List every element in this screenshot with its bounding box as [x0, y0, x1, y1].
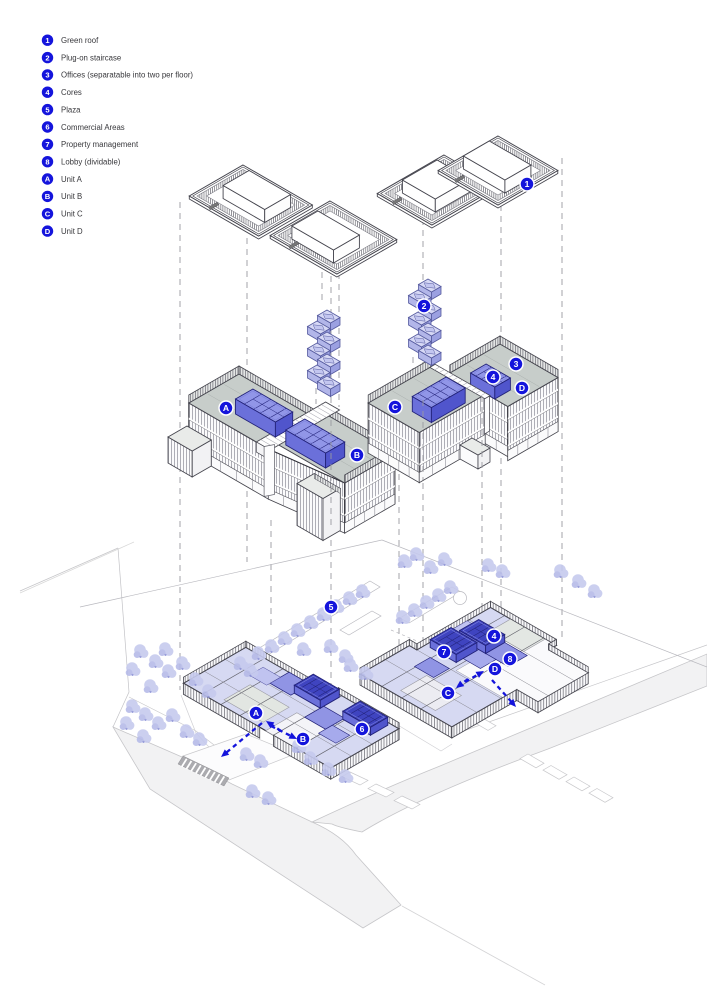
svg-text:6: 6 [45, 123, 49, 132]
svg-text:Cores: Cores [61, 88, 82, 97]
svg-text:5: 5 [329, 602, 334, 612]
svg-text:C: C [392, 402, 398, 412]
svg-text:4: 4 [492, 631, 497, 641]
svg-text:D: D [519, 383, 525, 393]
svg-text:B: B [354, 450, 360, 460]
svg-text:Unit B: Unit B [61, 192, 82, 201]
svg-text:6: 6 [360, 724, 365, 734]
svg-text:7: 7 [442, 647, 447, 657]
svg-text:Property management: Property management [61, 140, 139, 149]
svg-text:8: 8 [508, 654, 513, 664]
svg-text:A: A [45, 175, 51, 184]
svg-text:D: D [45, 227, 51, 236]
svg-text:Plaza: Plaza [61, 105, 81, 114]
svg-text:2: 2 [422, 301, 427, 311]
svg-text:7: 7 [45, 140, 49, 149]
svg-text:4: 4 [491, 372, 496, 382]
svg-text:Commercial Areas: Commercial Areas [61, 123, 125, 132]
svg-text:D: D [492, 664, 498, 674]
svg-text:Unit C: Unit C [61, 210, 83, 219]
svg-text:3: 3 [514, 359, 519, 369]
svg-text:3: 3 [45, 71, 49, 80]
svg-text:B: B [300, 734, 306, 744]
svg-text:Plug-on staircase: Plug-on staircase [61, 53, 121, 62]
svg-text:A: A [223, 403, 229, 413]
svg-text:2: 2 [45, 53, 49, 62]
svg-text:Lobby (dividable): Lobby (dividable) [61, 158, 121, 167]
svg-text:C: C [45, 209, 51, 218]
svg-text:Green roof: Green roof [61, 36, 99, 45]
svg-text:C: C [445, 688, 451, 698]
svg-text:8: 8 [45, 157, 49, 166]
svg-text:1: 1 [525, 179, 530, 189]
svg-text:Unit D: Unit D [61, 227, 83, 236]
svg-text:B: B [45, 192, 51, 201]
svg-text:Unit A: Unit A [61, 175, 83, 184]
svg-text:Offices (separatable into two: Offices (separatable into two per floor) [61, 71, 193, 80]
svg-text:A: A [253, 708, 259, 718]
